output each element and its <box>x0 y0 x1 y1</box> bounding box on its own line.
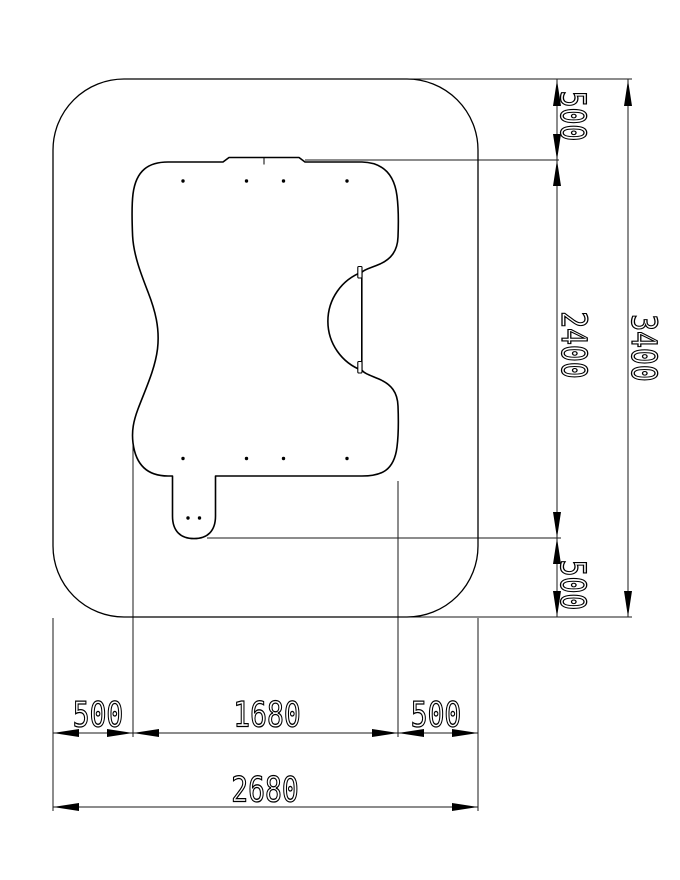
dim-label-left-offset: 500 <box>73 698 124 733</box>
dim-label-bottom-offset: 500 <box>555 560 590 611</box>
notch-clip-bottom <box>358 362 362 374</box>
dim-label-inner-width: 1680 <box>233 698 300 733</box>
dim-label-right-offset: 500 <box>411 698 462 733</box>
dim-label-total-height: 3400 <box>626 314 661 381</box>
dim-label-top-offset: 500 <box>555 91 590 142</box>
notch-clip-top <box>358 267 362 279</box>
part-outline <box>132 158 398 539</box>
cad-drawing: 500 2400 3400 500 500 1680 500 2680 <box>0 0 680 880</box>
dim-label-total-width: 2680 <box>231 773 298 808</box>
dim-label-inner-height: 2400 <box>556 311 591 378</box>
